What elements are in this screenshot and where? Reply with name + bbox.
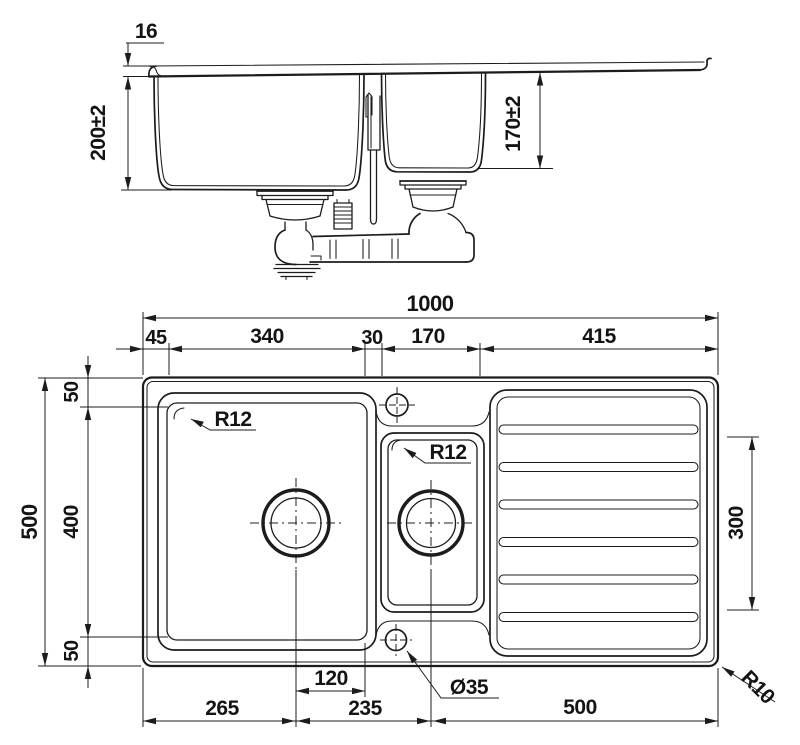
drainer-inner xyxy=(497,397,700,649)
dim-text-300: 300 xyxy=(725,506,748,540)
dim-text-50-top: 50 xyxy=(61,381,83,403)
dim-edge-height: 16 xyxy=(123,20,164,77)
label-r12-small: R12 xyxy=(429,441,466,464)
label-r12-main: R12 xyxy=(214,408,251,431)
overflow-threaded-adapter xyxy=(334,200,352,230)
dim-text-30: 30 xyxy=(361,327,383,349)
overflow-assembly xyxy=(366,93,380,224)
dim-text-235: 235 xyxy=(348,697,382,720)
drainer-rib xyxy=(499,613,698,622)
surround-bottom-curve xyxy=(376,621,489,636)
main-bowl-rim xyxy=(158,393,376,650)
leader-dia35: Ø35 xyxy=(407,651,499,699)
dim-text-400: 400 xyxy=(60,505,83,539)
drainer-outer xyxy=(490,390,707,656)
tap-hole xyxy=(379,387,415,423)
leader-r12-main: R12 xyxy=(191,408,256,431)
dim-text-340: 340 xyxy=(250,325,284,348)
small-bowl-outer-wall xyxy=(382,72,486,172)
drainer xyxy=(490,390,707,656)
drainer-rib xyxy=(499,463,698,472)
drainer-rib xyxy=(499,575,698,584)
label-r10: R10 xyxy=(736,666,778,708)
main-drain-hole xyxy=(250,478,342,570)
surround-top-curve xyxy=(376,411,489,426)
dim-text-265: 265 xyxy=(205,697,239,720)
drainer-rib xyxy=(499,500,698,509)
drainer-rib xyxy=(499,538,698,547)
label-dia35: Ø35 xyxy=(450,676,489,699)
main-bowl-outer-wall xyxy=(154,75,364,190)
leader-r12-small: R12 xyxy=(404,441,471,464)
small-drain-trap xyxy=(400,181,466,234)
dim-text-170: 170 xyxy=(411,325,445,348)
dim-text-50-bottom: 50 xyxy=(61,640,83,662)
dim-text-200: 200±2 xyxy=(87,105,110,161)
small-drain-hole xyxy=(387,480,475,570)
rim-top-line xyxy=(150,62,704,66)
main-bowl-radius-arc xyxy=(174,408,184,419)
dim-text-45: 45 xyxy=(145,327,167,349)
sink-technical-drawing: 16 200±2 170±2 xyxy=(0,0,800,745)
right-edge-curl xyxy=(700,58,711,70)
deck-line xyxy=(149,70,700,77)
dim-small-bowl-depth: 170±2 xyxy=(477,73,553,169)
main-bowl-opening xyxy=(167,403,367,640)
waste-pipe xyxy=(310,233,474,263)
dim-text-500-span: 500 xyxy=(563,696,597,719)
dim-text-500-depth: 500 xyxy=(17,504,42,539)
small-bowl-radius-arc xyxy=(392,440,401,450)
side-section-view: 16 200±2 170±2 xyxy=(87,20,711,280)
small-bowl-inner-wall xyxy=(386,73,482,169)
technical-drawing-page: 16 200±2 170±2 xyxy=(0,0,800,745)
dim-text-170pm: 170±2 xyxy=(502,96,525,152)
leader-r10: R10 xyxy=(722,666,779,708)
dim-text-415: 415 xyxy=(582,325,616,348)
dim-text-1000: 1000 xyxy=(407,291,454,316)
dim-text-120: 120 xyxy=(314,667,348,690)
main-drain-trap xyxy=(257,191,333,280)
dim-text-16: 16 xyxy=(135,20,157,43)
main-bowl-inner-wall xyxy=(158,75,360,186)
drainer-rib xyxy=(499,425,698,434)
